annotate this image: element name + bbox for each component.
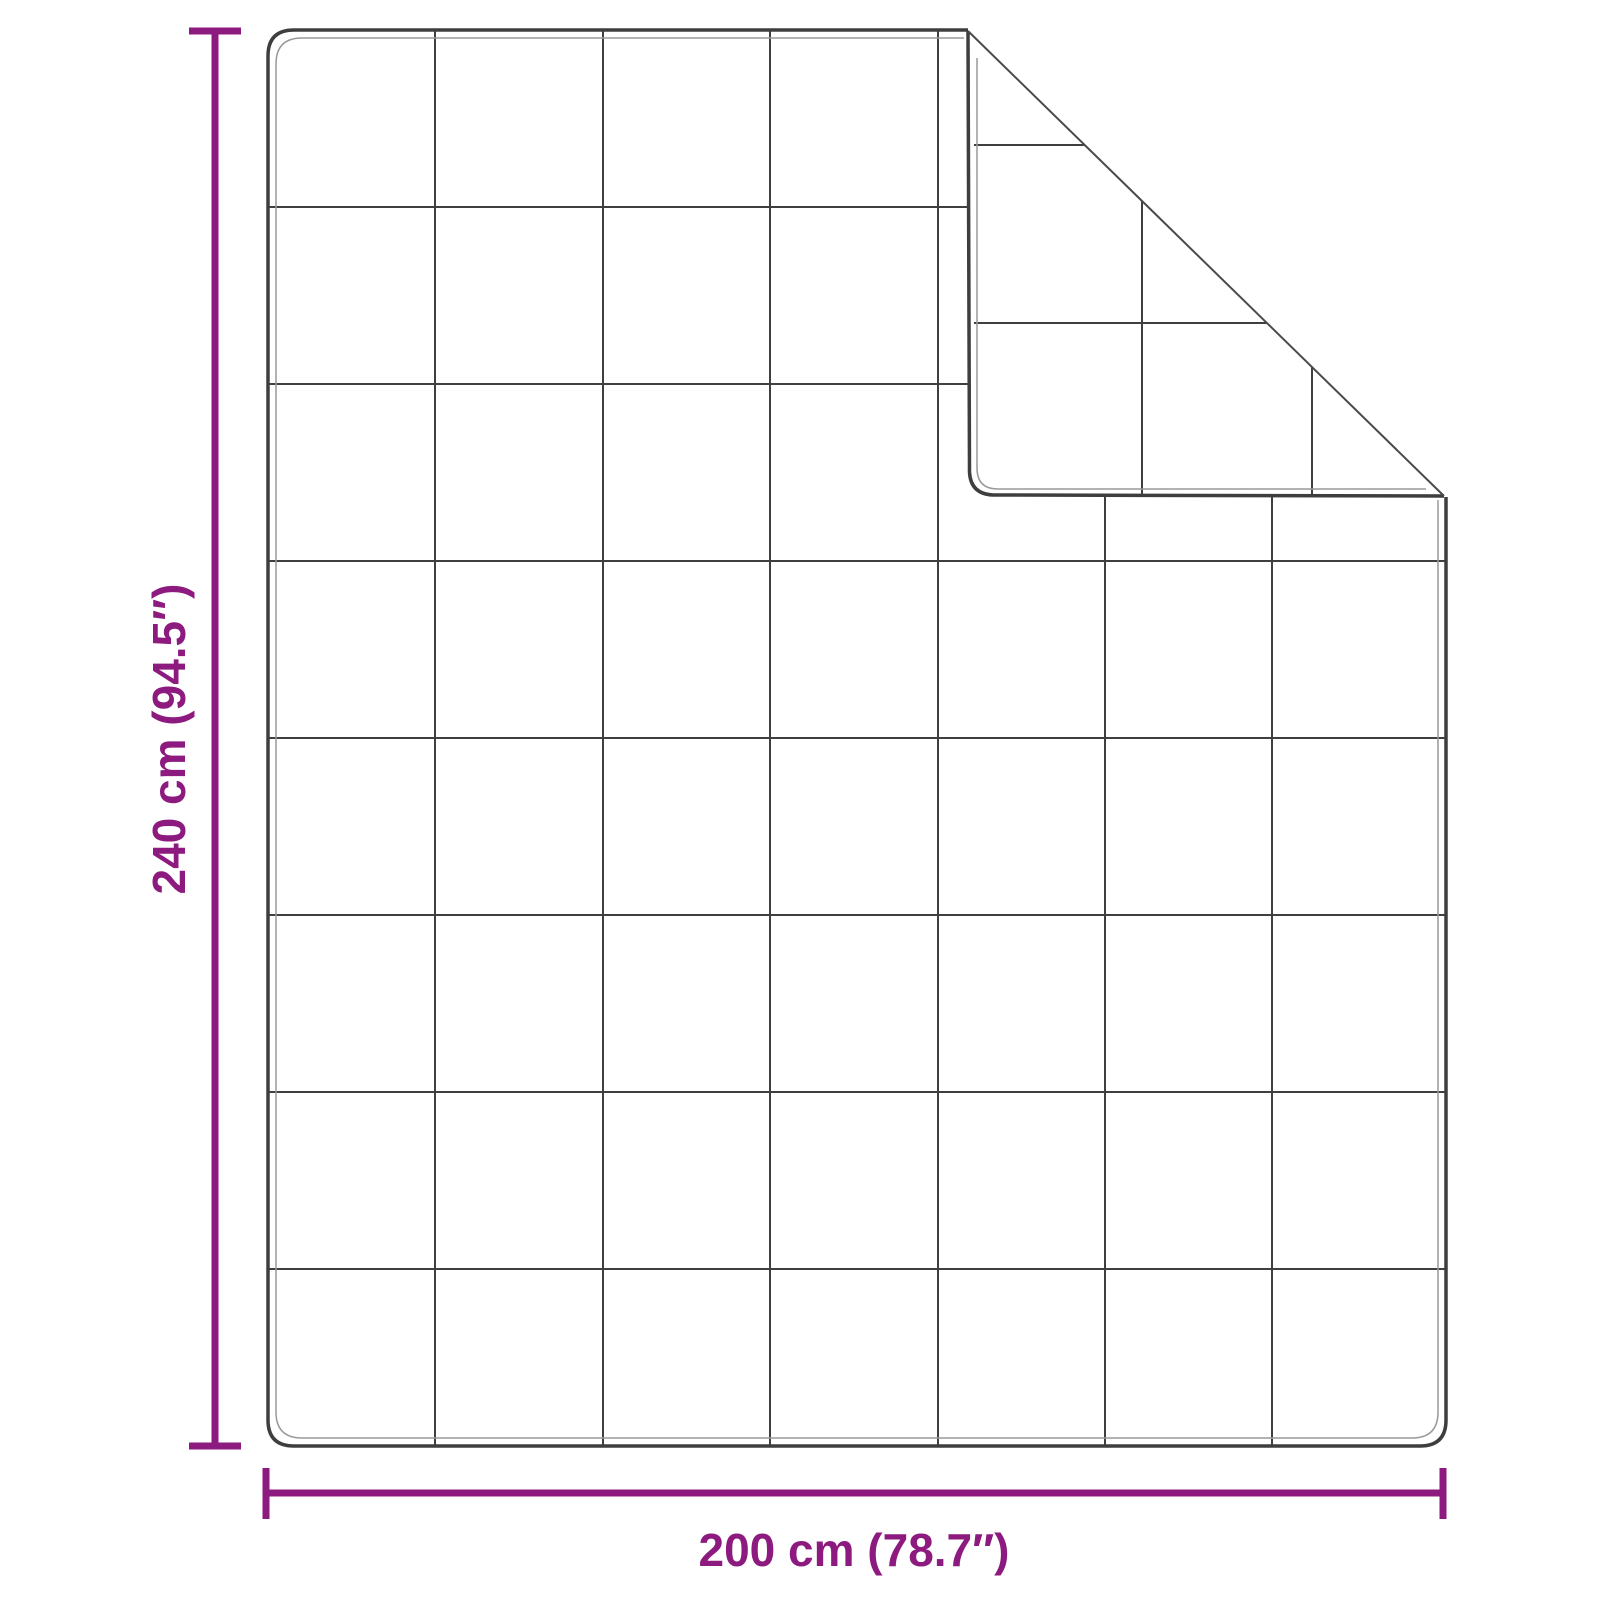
diagram-canvas: 240 cm (94.5″) 200 cm (78.7″): [0, 0, 1600, 1600]
blanket-dimension-diagram: 240 cm (94.5″) 200 cm (78.7″): [0, 0, 1600, 1600]
width-label: 200 cm (78.7″): [699, 1524, 1010, 1576]
height-label: 240 cm (94.5″): [143, 584, 195, 895]
vertical-dimension: [189, 31, 241, 1446]
horizontal-dimension: [266, 1468, 1443, 1519]
folded-corner: [968, 31, 1444, 496]
